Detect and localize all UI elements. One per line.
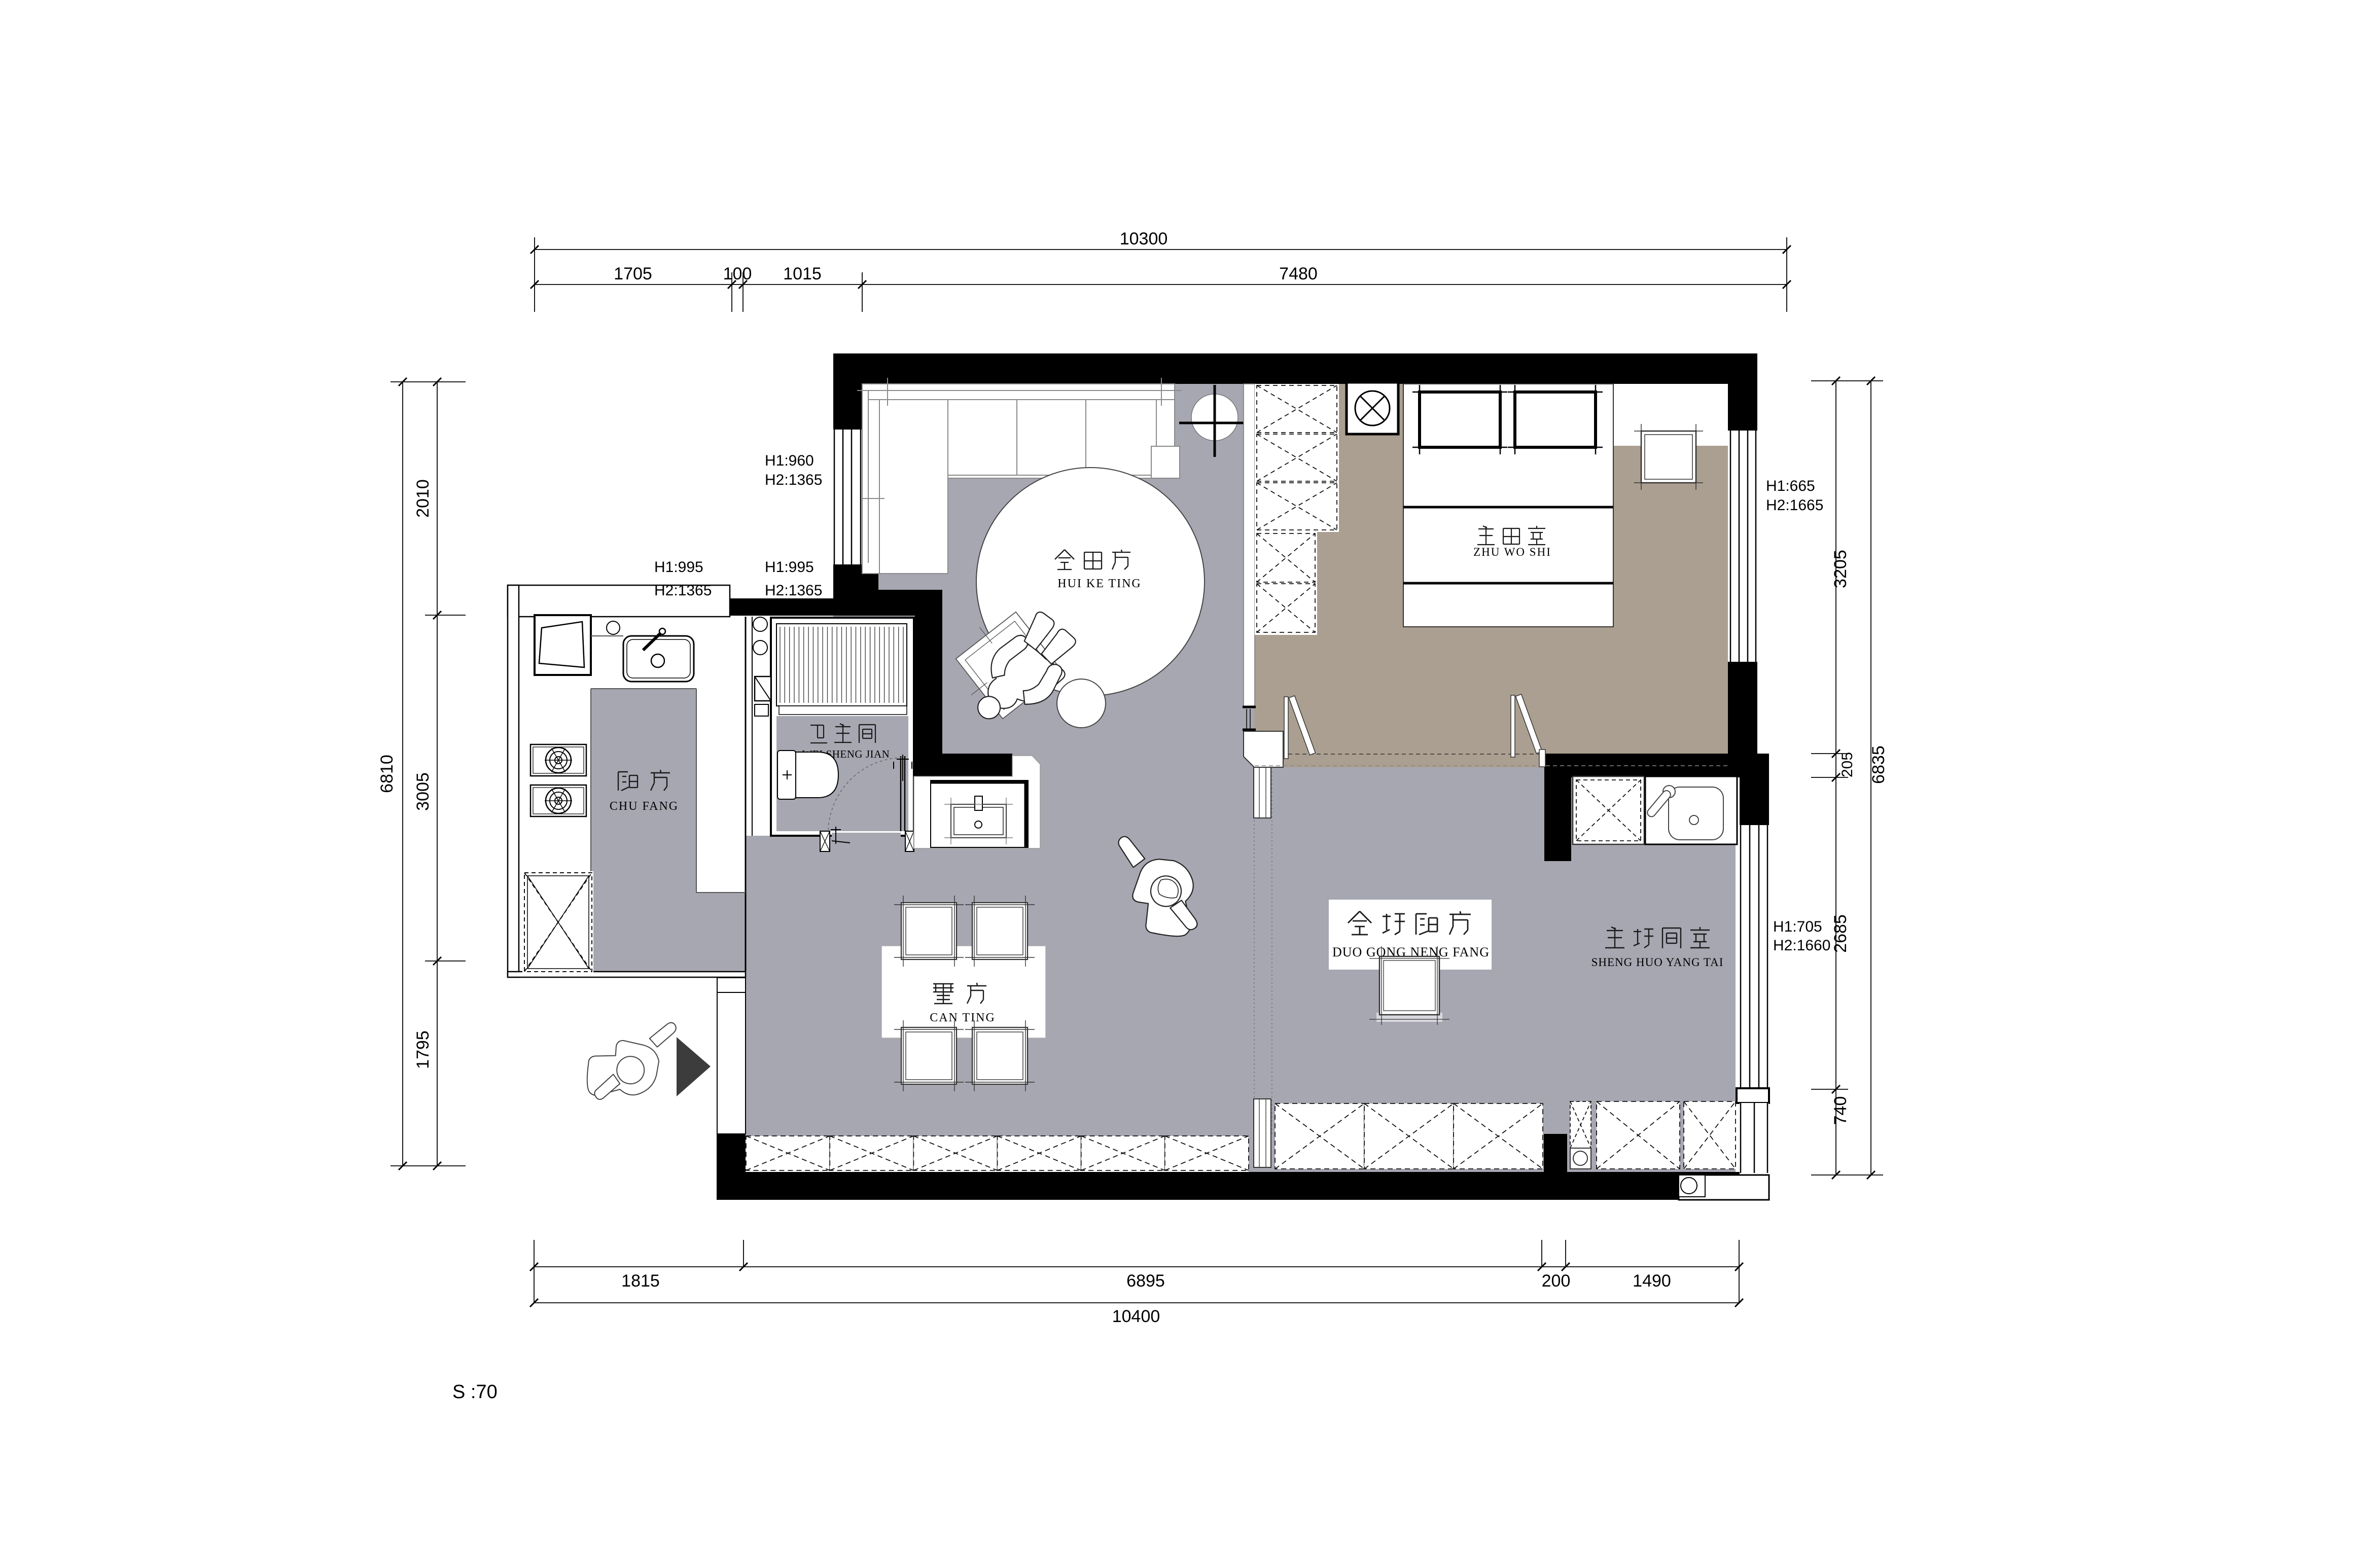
svg-text:6895: 6895: [1126, 1271, 1165, 1291]
svg-text:H2:1660: H2:1660: [1773, 937, 1830, 954]
svg-text:7480: 7480: [1279, 264, 1318, 283]
svg-text:10400: 10400: [1112, 1307, 1160, 1326]
svg-text:ZHU WO SHI: ZHU WO SHI: [1473, 546, 1551, 558]
svg-text:2685: 2685: [1831, 914, 1850, 953]
svg-text:10300: 10300: [1120, 229, 1168, 248]
svg-text:H2:1665: H2:1665: [1766, 497, 1823, 514]
svg-text:HUI KE TING: HUI KE TING: [1057, 577, 1142, 590]
svg-text:740: 740: [1831, 1096, 1850, 1125]
svg-text:205: 205: [1839, 752, 1856, 777]
svg-text:CAN TING: CAN TING: [930, 1011, 996, 1024]
svg-text:3005: 3005: [413, 772, 433, 811]
svg-text:200: 200: [1542, 1271, 1571, 1291]
svg-text:6810: 6810: [377, 755, 397, 793]
svg-text:1705: 1705: [614, 264, 652, 283]
svg-text:H1:705: H1:705: [1773, 918, 1822, 935]
svg-text:2010: 2010: [413, 479, 433, 518]
svg-text:3205: 3205: [1831, 550, 1850, 588]
svg-text:H1:995: H1:995: [765, 559, 814, 576]
svg-text:H1:960: H1:960: [765, 452, 814, 469]
svg-text:CHU FANG: CHU FANG: [610, 800, 679, 813]
svg-text:H2:1365: H2:1365: [765, 582, 822, 599]
svg-text:1795: 1795: [413, 1030, 433, 1069]
svg-text:6835: 6835: [1869, 745, 1888, 784]
svg-text:H2:1365: H2:1365: [765, 472, 822, 488]
svg-text:SHENG HUO YANG TAI: SHENG HUO YANG TAI: [1591, 956, 1724, 969]
svg-text:100: 100: [723, 264, 752, 283]
svg-text:1815: 1815: [621, 1271, 660, 1291]
svg-text:H1:665: H1:665: [1766, 478, 1815, 494]
svg-text:H2:1365: H2:1365: [654, 582, 712, 599]
svg-text:S :70: S :70: [452, 1381, 498, 1403]
svg-text:H1:995: H1:995: [654, 559, 703, 576]
svg-text:1015: 1015: [783, 264, 822, 283]
svg-text:1490: 1490: [1633, 1271, 1671, 1291]
